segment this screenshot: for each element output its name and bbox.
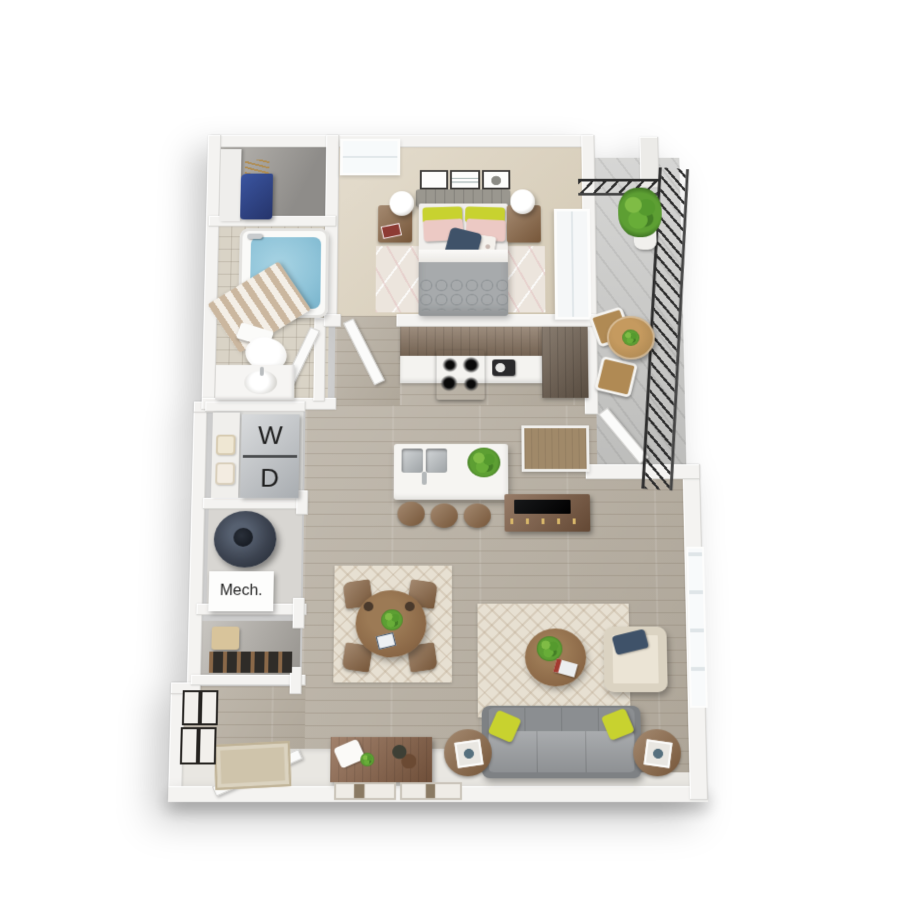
side-table-right (633, 729, 682, 776)
entry-closet-basket (211, 627, 239, 650)
wall-kitchen-back-stub (324, 314, 341, 327)
nightstand-right (507, 205, 541, 242)
dining-chair-sw (342, 642, 373, 672)
mech-label: Mech. (220, 583, 263, 600)
island-sink-left (402, 449, 423, 473)
bed-duvet (418, 262, 508, 316)
floors-group (0, 63, 900, 900)
living-room-window (686, 547, 707, 708)
dining-table-book (376, 632, 396, 649)
dining-rug (333, 566, 452, 683)
bistro-chair-top (589, 306, 633, 347)
bed-pillow-yellow-right (465, 206, 505, 223)
bistro-table (607, 316, 656, 360)
entry-frame-4 (198, 727, 217, 764)
coffee-table (525, 629, 587, 687)
balcony-railing-top (578, 179, 659, 196)
bathtub (238, 228, 329, 317)
wall-mech-south (196, 604, 306, 615)
wall-utility-front-2 (293, 598, 305, 629)
island-faucet (422, 472, 427, 485)
bed-pillow-yellow-left (422, 206, 462, 223)
armchair-pillow-navy (612, 629, 649, 656)
bedroom-door (343, 318, 385, 385)
leaning-art-1 (334, 782, 396, 800)
media-console (504, 494, 590, 532)
dining-group (0, 63, 900, 900)
balcony-group (0, 63, 900, 900)
sofa-pillow-yellow-left (488, 710, 522, 744)
bedroom-group (0, 63, 900, 900)
wall-utility-front-1 (296, 490, 308, 514)
washer-dryer-unit (240, 414, 300, 497)
shower-curtain (207, 261, 311, 353)
dryer-label: D (240, 459, 299, 498)
side-table-left (444, 729, 492, 776)
closet-hanging-clothes (240, 174, 273, 220)
lamp-left (390, 191, 415, 216)
entry-frame-2 (200, 690, 219, 725)
kitchen-island (394, 444, 509, 500)
wall-left-upper (201, 135, 221, 409)
wall-art-frame-1 (420, 170, 448, 189)
entry-closet-shoe-rack (209, 652, 292, 673)
wall-bedroom-west (324, 135, 339, 327)
water-heater-cap (233, 528, 253, 547)
range-stove (437, 350, 485, 399)
bathroom-door (285, 327, 320, 384)
wall-left-mid (187, 402, 208, 691)
washer-label: W (241, 416, 300, 455)
entry-doormat (214, 741, 291, 790)
balcony-door (598, 408, 648, 464)
wall-laundry-south (203, 498, 308, 509)
sofa-wall-tile-strip (470, 772, 690, 788)
sofa-pillow-yellow-right (601, 708, 635, 741)
toilet-tank (236, 322, 274, 348)
floorplan-stage: W D Mech. (0, 0, 900, 900)
kitchen-group (0, 63, 900, 900)
vanity-sink (244, 370, 277, 394)
wall-bottom (168, 786, 708, 802)
wall-bath-south (201, 398, 336, 410)
coffee-table-plant (537, 636, 563, 661)
closet-shelf (219, 149, 241, 221)
wall-art-frame-3 (482, 170, 510, 189)
side-table-left-frame (454, 739, 483, 768)
console-vases (392, 745, 416, 769)
console-tray (333, 739, 365, 769)
dining-table-plant (381, 609, 403, 630)
bed-sheet-band (419, 250, 508, 264)
wall-kitchen-back (396, 314, 597, 327)
bedroom-top-window (340, 139, 400, 176)
bathroom-floor (214, 225, 330, 402)
bathroom-group (0, 63, 900, 900)
tv (514, 500, 571, 514)
coffee-table-book (553, 659, 578, 678)
entry-floor (180, 686, 305, 790)
balcony-railing-right (641, 167, 689, 490)
kitchen-floor (400, 323, 589, 407)
leaning-art-2 (400, 782, 462, 800)
entry-frame-1 (182, 690, 201, 725)
dining-chair-nw (342, 579, 373, 609)
nightstand-left (378, 205, 412, 242)
console-knobs (510, 518, 578, 524)
entry-tile-strip (180, 749, 476, 788)
bar-stool-2 (431, 503, 458, 527)
bistro-chair-bottom (594, 356, 638, 398)
desk-nook (521, 425, 589, 471)
bar-stool-3 (464, 503, 491, 527)
closet-floor (218, 145, 331, 226)
bedroom-rug (376, 246, 546, 312)
coffee-maker (492, 359, 515, 375)
walls-group (0, 63, 900, 900)
water-heater (213, 511, 277, 568)
living-group (0, 63, 900, 900)
side-table-right-frame (644, 739, 673, 768)
mech-closet-floor (207, 509, 303, 605)
wall-left-lower (168, 682, 185, 800)
wall-entry-closet-south (191, 675, 306, 686)
tub-faucet (247, 234, 262, 239)
bed-pillow-navy (444, 227, 483, 262)
bed-pillow-floral (470, 234, 497, 255)
island-sink-right (426, 449, 447, 473)
closet-hangers (245, 160, 270, 174)
dining-chair-ne (407, 579, 438, 609)
bed-duvet-pattern (419, 278, 509, 310)
bistro-table-plant (622, 330, 640, 346)
sofa-seat-cushions (488, 731, 636, 772)
sofa-back (488, 708, 635, 733)
bathtub-water (250, 237, 322, 309)
entry-door (212, 749, 303, 797)
bedroom-carpet-floor (335, 146, 589, 318)
dining-table (355, 590, 426, 657)
bed-headboard (416, 189, 510, 207)
entry-closet-floor (199, 621, 301, 677)
console-plant-small (360, 753, 374, 767)
bed-mattress (418, 204, 508, 316)
console-table (330, 737, 432, 782)
entry-group (0, 63, 900, 900)
nightstand-books (381, 223, 402, 239)
balcony-plant (618, 188, 662, 238)
hallway-floor (334, 316, 408, 409)
wall-closet-bath-divider (209, 216, 337, 227)
armchair (603, 627, 667, 693)
bed-pillow-pink-right (466, 218, 507, 241)
entry-frame-3 (180, 727, 199, 764)
refrigerator (542, 327, 589, 398)
dining-placemat-1 (364, 602, 374, 612)
laundry-closet-floor (211, 411, 304, 500)
laundry-basket-1 (216, 435, 236, 455)
kitchen-counter (400, 356, 542, 383)
lamp-right (510, 189, 535, 214)
mech-label-plate: Mech. (208, 571, 274, 611)
vanity-faucet (260, 367, 264, 376)
wall-utility-front-3 (290, 667, 302, 694)
toilet-bowl (240, 332, 291, 375)
apartment-floorplan: W D Mech. (0, 63, 900, 900)
wall-balcony-return (586, 464, 701, 479)
laundry-shelf (211, 413, 240, 498)
bed-pillow-pink-left (423, 218, 464, 241)
wall-bath-east (313, 318, 326, 402)
living-room-floor (300, 405, 692, 790)
wall-laundry-north (205, 402, 305, 412)
kitchen-cabinets (400, 327, 542, 358)
bathroom-vanity (215, 365, 294, 400)
walkin-closet-group (0, 63, 900, 900)
sofa-base (482, 706, 642, 778)
bedroom-east-window (554, 209, 591, 320)
balcony-post (639, 137, 659, 188)
wall-right-living (682, 464, 708, 800)
balcony-floor (593, 158, 687, 479)
washer-dryer-divider (243, 455, 297, 458)
wall-balcony-divider (581, 135, 598, 414)
living-rug (477, 604, 630, 718)
bar-stool-1 (397, 502, 424, 526)
dining-placemat-2 (405, 602, 415, 612)
island-plant (467, 448, 500, 478)
laundry-basket-2 (215, 462, 235, 484)
balcony-plant-pot (634, 230, 657, 250)
dining-chair-se (407, 642, 438, 672)
utility-group: W D Mech. (0, 63, 900, 900)
wall-jog-lower (171, 682, 201, 694)
wall-art-frame-2 (450, 170, 480, 189)
openings-group (0, 63, 900, 900)
wall-top (211, 135, 593, 147)
wall-jog-upper (194, 402, 215, 413)
